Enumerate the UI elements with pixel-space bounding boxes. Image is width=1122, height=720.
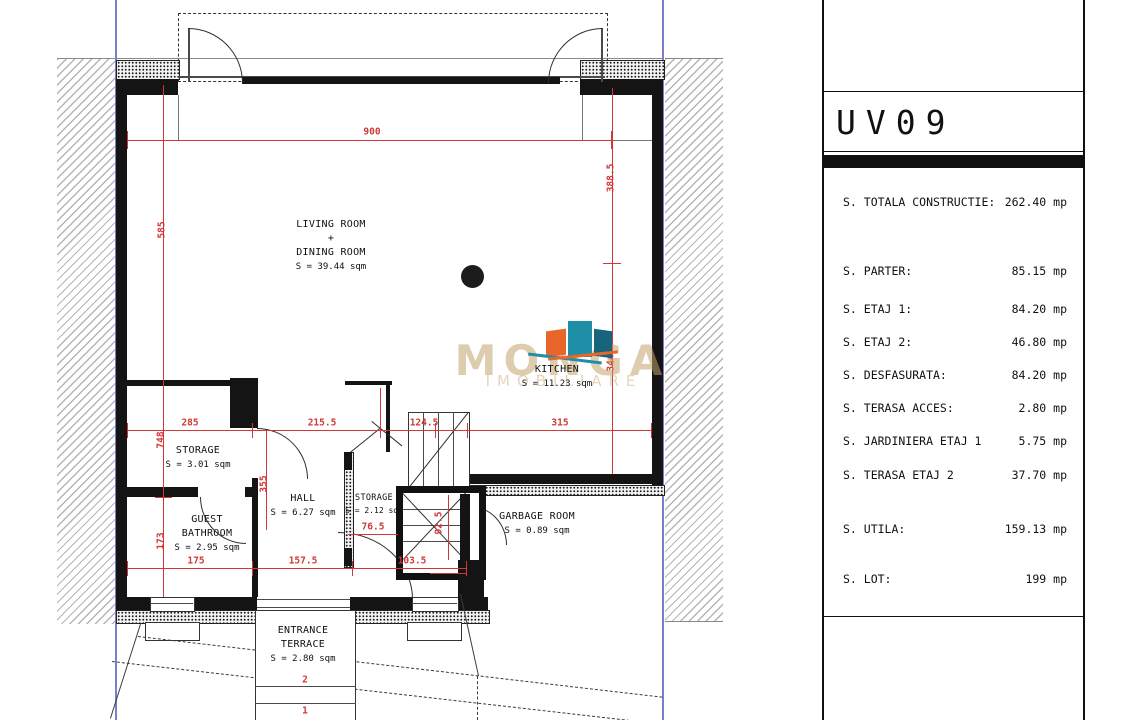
stair-start-line-1	[350, 427, 381, 452]
tick-430-e	[467, 423, 468, 438]
garbage-name: GARBAGE ROOM	[499, 510, 575, 524]
storage1-name: STORAGE	[165, 444, 230, 458]
dim-line-garbage-floor	[430, 573, 467, 574]
wall-step-left	[127, 95, 179, 141]
window-sill-bar-top	[242, 77, 560, 84]
terrace-line1: ENTRANCE	[270, 624, 335, 638]
window-bottom-right	[412, 597, 459, 612]
row-label: S. ETAJ 1:	[843, 302, 912, 316]
row-value: 2.80 mp	[1019, 401, 1067, 415]
living-area: S = 39.44 sqm	[296, 262, 366, 272]
dim-215-5: 215.5	[308, 418, 337, 429]
table-row: S. ETAJ 1: 84.20 mp	[843, 302, 1067, 316]
dim-173: 173	[156, 532, 167, 549]
dim-line-388	[612, 88, 613, 474]
storage1-area: S = 3.01 sqm	[165, 460, 230, 470]
dim-157-5: 157.5	[289, 556, 318, 567]
row-value: 199 mp	[1025, 572, 1067, 586]
driveway-dashed-lower	[112, 661, 665, 720]
row-label: S. PARTER:	[843, 264, 912, 278]
stair-tread-3	[453, 412, 454, 488]
living-line1: LIVING ROOM	[296, 218, 366, 232]
row-label: S. TERASA ACCES:	[843, 401, 954, 415]
room-label-storage2: STORAGE S = 2.12 sqm	[345, 493, 403, 518]
terrace-area: S = 2.80 sqm	[270, 654, 335, 664]
panel-divider-3	[822, 616, 1084, 617]
row-label: S. TERASA ETAJ 2	[843, 468, 954, 482]
terrace-step-line-2	[255, 703, 356, 704]
wall-garbage-east	[460, 494, 470, 565]
site-hatch-left	[57, 58, 116, 624]
table-row: S. LOT: 199 mp	[843, 572, 1067, 586]
table-row: S. DESFASURATA: 84.20 mp	[843, 368, 1067, 382]
dim-355: 355	[259, 475, 270, 492]
row-value: 262.40 mp	[1005, 195, 1067, 209]
wall-step-horizontal	[470, 474, 663, 484]
row-value: 37.70 mp	[1012, 468, 1067, 482]
window-bottom-left-mullion	[150, 603, 193, 604]
hall-area: S = 6.27 sqm	[270, 508, 335, 518]
table-row: S. TERASA ACCES: 2.80 mp	[843, 401, 1067, 415]
dim-tick-163-497	[155, 497, 172, 498]
floor-plan-sheet: 2 1 900 585 748 173 388.5 344 285 215.5 …	[0, 0, 1122, 720]
wall-kitchen-vertical	[386, 381, 390, 452]
storage2-area: S = 2.12 sqm	[345, 506, 403, 515]
dim-line-900	[127, 140, 612, 141]
structural-column	[461, 265, 484, 288]
unit-title: UV09	[836, 103, 955, 142]
dim-103-5: 103.5	[398, 556, 427, 567]
stair-lower-tread-3	[403, 541, 465, 542]
wall-bath-top-b	[245, 487, 258, 497]
tick-430-f	[651, 423, 652, 438]
tick-430-a	[127, 423, 128, 438]
dim-92-5: 92.5	[434, 512, 445, 535]
room-label-guest-bathroom: GUEST BATHROOM S = 2.95 sqm	[174, 513, 239, 555]
dim-tick-612-263	[603, 263, 621, 264]
row-value: 46.80 mp	[1012, 335, 1067, 349]
wall-bottom-a	[116, 597, 150, 610]
terrace-step1-number: 1	[302, 706, 308, 717]
wall-left	[116, 79, 127, 620]
wall-hall-west-upper	[252, 386, 258, 428]
wall-storage-top	[127, 380, 232, 386]
room-label-storage1: STORAGE S = 3.01 sqm	[165, 444, 230, 472]
tick-568-b	[252, 561, 253, 576]
insulation-top-left	[116, 60, 180, 80]
bathroom-line2: BATHROOM	[174, 527, 239, 541]
wall-storage2-west-cap-bot	[344, 548, 352, 566]
dim-line-585	[163, 85, 164, 597]
terrace-threshold-line2	[257, 607, 350, 608]
wall-bath-top-a	[117, 487, 198, 497]
panel-border-left	[822, 0, 824, 720]
row-label: S. TOTALA CONSTRUCTIE:	[843, 195, 995, 209]
row-value: 159.13 mp	[1005, 522, 1067, 536]
row-label: S. JARDINIERA ETAJ 1	[843, 434, 981, 448]
terrace-threshold-line1	[257, 599, 350, 600]
tick-568-c	[352, 561, 353, 576]
site-hatch-right	[665, 58, 723, 622]
room-label-hall: HALL S = 6.27 sqm	[270, 492, 335, 520]
room-label-terrace: ENTRANCE TERRACE S = 2.80 sqm	[270, 624, 335, 666]
window-bottom-right-mullion	[412, 603, 457, 604]
table-row: S. TERASA ETAJ 2 37.70 mp	[843, 468, 1067, 482]
room-label-garbage: GARBAGE ROOM S = 0.89 sqm	[499, 510, 575, 538]
terrace-step-line-1	[255, 686, 356, 687]
dim-line-92-5	[448, 495, 449, 560]
terrace-line2: TERRACE	[270, 638, 335, 652]
path-dashed-right	[477, 676, 478, 720]
table-row: S. UTILA: 159.13 mp	[843, 522, 1067, 536]
table-row: S. ETAJ 2: 46.80 mp	[843, 335, 1067, 349]
row-label: S. DESFASURATA:	[843, 368, 947, 382]
living-line2: +	[296, 232, 366, 246]
insulation-step	[470, 485, 665, 496]
dim-chain-568	[127, 568, 467, 569]
row-value: 84.20 mp	[1012, 368, 1067, 382]
row-label: S. LOT:	[843, 572, 891, 586]
wall-bottom-b	[193, 597, 257, 610]
wall-right	[652, 79, 663, 490]
row-value: 85.15 mp	[1012, 264, 1067, 278]
panel-title-bar	[822, 155, 1084, 168]
wall-step-right	[582, 95, 653, 141]
dim-end-900-l	[127, 131, 128, 149]
garbage-area: S = 0.89 sqm	[504, 526, 569, 536]
row-value: 84.20 mp	[1012, 302, 1067, 316]
dim-388-5: 388.5	[606, 164, 617, 193]
dim-line-76-5	[348, 534, 398, 535]
dim-900: 900	[363, 127, 380, 138]
tick-430-b	[252, 423, 253, 438]
door-swing-storage	[257, 428, 308, 479]
wall-corner-bottom-right	[458, 560, 484, 600]
dim-175: 175	[187, 556, 204, 567]
logo-building-orange	[546, 329, 566, 358]
room-label-living: LIVING ROOM + DINING ROOM S = 39.44 sqm	[296, 218, 366, 274]
bathroom-area: S = 2.95 sqm	[174, 543, 239, 553]
dim-585: 585	[157, 221, 168, 238]
room-label-kitchen: KITCHEN S = 11.23 sqm	[522, 363, 592, 391]
wall-storage2-west-cap-top	[344, 452, 352, 470]
row-label: S. ETAJ 2:	[843, 335, 912, 349]
table-row: S. JARDINIERA ETAJ 1 5.75 mp	[843, 434, 1067, 448]
dim-315: 315	[551, 418, 568, 429]
table-row: S. PARTER: 85.15 mp	[843, 264, 1067, 278]
driveway-dashed-upper	[138, 636, 663, 698]
terrace-step2-number: 2	[302, 675, 308, 686]
stair-lower-tread-1	[403, 509, 465, 510]
row-label: S. UTILA:	[843, 522, 905, 536]
panel-divider-1	[822, 91, 1084, 92]
storage2-name: STORAGE	[345, 493, 403, 505]
wall-kitchen-horizontal	[345, 381, 392, 385]
window-bottom-left	[150, 597, 195, 612]
panel-border-right	[1083, 0, 1085, 720]
dim-line-kitchen	[380, 388, 381, 430]
row-value: 5.75 mp	[1019, 434, 1067, 448]
hall-name: HALL	[270, 492, 335, 506]
dim-76-5: 76.5	[362, 522, 385, 533]
living-line3: DINING ROOM	[296, 246, 366, 260]
tick-568-a	[127, 561, 128, 576]
dim-285: 285	[181, 418, 198, 429]
bathroom-line1: GUEST	[174, 513, 239, 527]
kitchen-name: KITCHEN	[522, 363, 592, 377]
logo-building-teal	[568, 321, 592, 357]
table-row: S. TOTALA CONSTRUCTIE: 262.40 mp	[843, 195, 1067, 209]
window-sill-right	[407, 622, 462, 641]
dim-124-5: 124.5	[410, 418, 439, 429]
upper-floor-overhang-dashed	[178, 13, 608, 82]
panel-divider-2	[822, 151, 1084, 152]
dim-chain-430	[127, 430, 652, 431]
kitchen-area: S = 11.23 sqm	[522, 379, 592, 389]
